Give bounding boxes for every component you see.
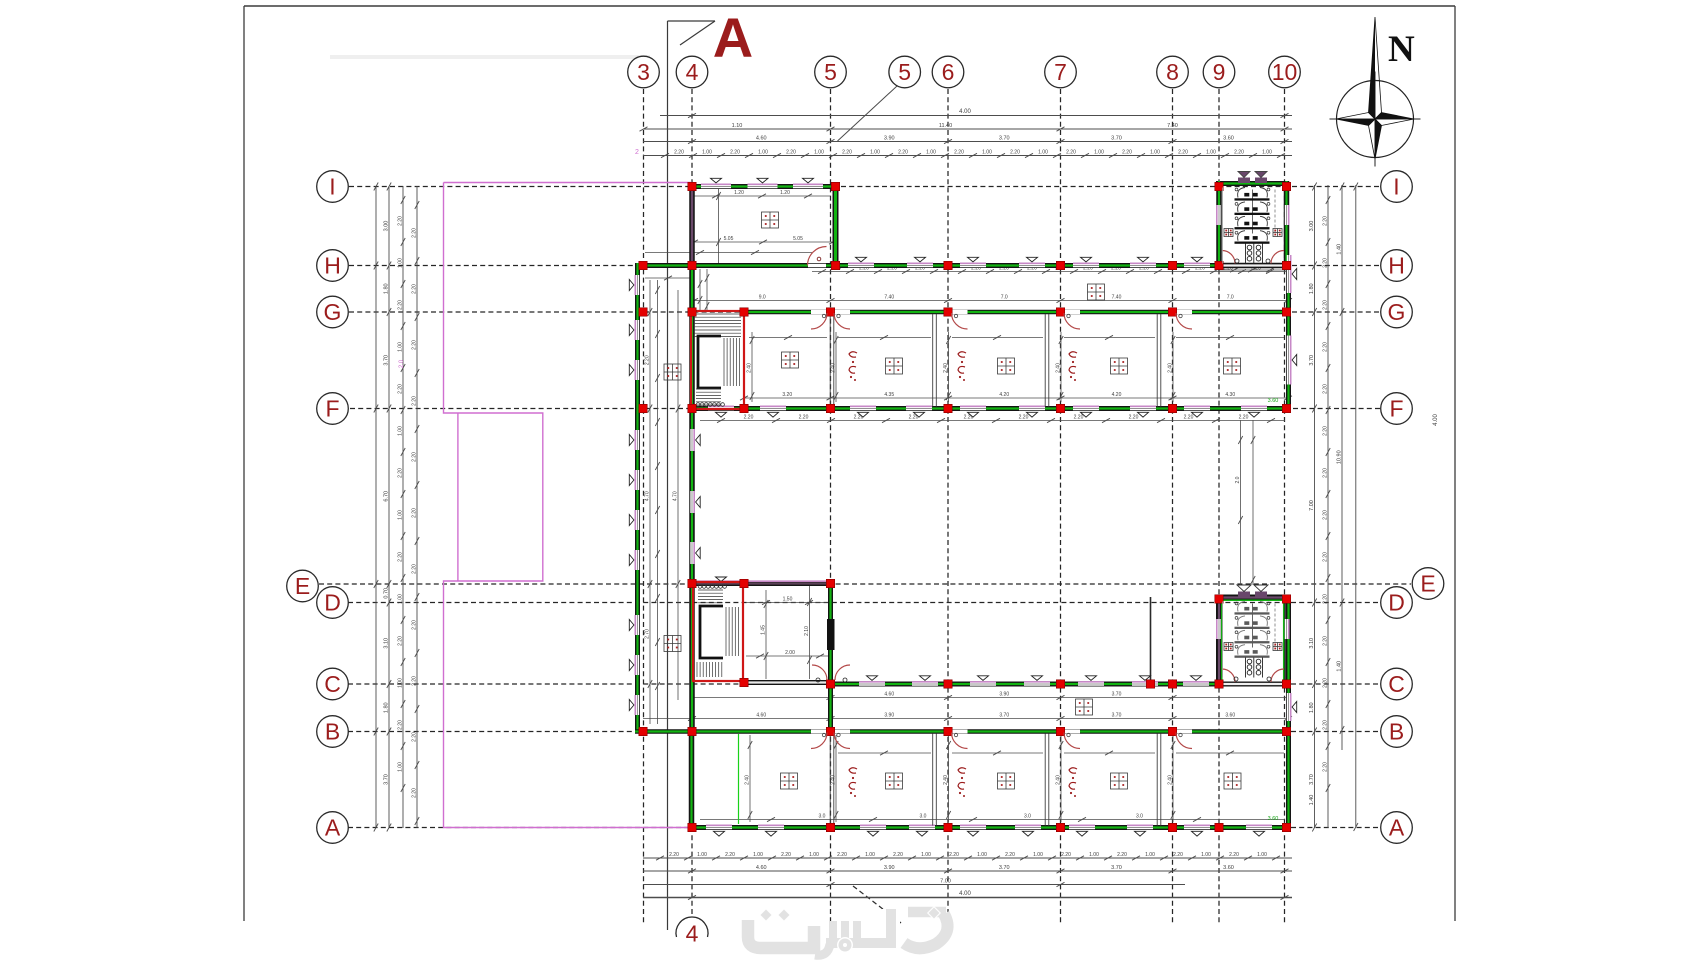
- svg-text:1.40: 1.40: [1337, 661, 1343, 672]
- svg-text:5: 5: [898, 59, 911, 85]
- svg-text:2.20: 2.20: [398, 552, 404, 562]
- svg-text:1.00: 1.00: [814, 150, 824, 156]
- svg-text:10: 10: [1272, 59, 1298, 85]
- svg-text:2.20: 2.20: [744, 415, 754, 421]
- svg-text:4.00: 4.00: [959, 109, 971, 115]
- svg-text:4.00: 4.00: [1433, 414, 1439, 426]
- svg-text:3.60: 3.60: [1225, 713, 1235, 719]
- svg-text:4.60: 4.60: [756, 865, 767, 871]
- svg-text:2.20: 2.20: [412, 732, 418, 742]
- svg-text:10.90: 10.90: [1337, 450, 1343, 464]
- svg-text:3.10: 3.10: [1309, 638, 1315, 649]
- svg-text:2.20: 2.20: [412, 228, 418, 238]
- svg-text:2.20: 2.20: [1323, 678, 1329, 688]
- svg-text:2.20: 2.20: [1323, 762, 1329, 772]
- svg-text:1.00: 1.00: [982, 150, 992, 156]
- svg-text:2.20: 2.20: [725, 852, 735, 858]
- svg-text:2.10: 2.10: [804, 626, 810, 636]
- svg-text:2.20: 2.20: [1323, 636, 1329, 646]
- svg-text:B: B: [1389, 719, 1404, 745]
- svg-text:2.20: 2.20: [412, 452, 418, 462]
- svg-text:3: 3: [637, 59, 650, 85]
- svg-text:4.20: 4.20: [999, 392, 1009, 398]
- svg-text:3.70: 3.70: [384, 774, 390, 785]
- svg-text:3.0: 3.0: [920, 814, 927, 820]
- svg-text:5: 5: [824, 59, 837, 85]
- svg-text:3.70: 3.70: [1112, 692, 1122, 698]
- svg-text:7.0: 7.0: [1227, 295, 1234, 301]
- svg-text:7: 7: [1054, 59, 1067, 85]
- svg-text:1.20: 1.20: [734, 190, 744, 196]
- svg-text:2.40: 2.40: [745, 775, 751, 785]
- svg-text:2.20: 2.20: [1229, 852, 1239, 858]
- svg-text:3.00: 3.00: [1309, 221, 1315, 232]
- svg-text:1.00: 1.00: [697, 852, 707, 858]
- svg-text:2.20: 2.20: [781, 852, 791, 858]
- svg-text:2.20: 2.20: [1184, 415, 1194, 421]
- svg-text:2.20: 2.20: [1005, 852, 1015, 858]
- svg-text:2.20: 2.20: [398, 636, 404, 646]
- svg-text:2.20: 2.20: [1019, 415, 1029, 421]
- svg-text:2.20: 2.20: [1129, 415, 1139, 421]
- svg-text:1.00: 1.00: [977, 852, 987, 858]
- svg-text:2.20: 2.20: [1323, 510, 1329, 520]
- svg-text:1.00: 1.00: [758, 150, 768, 156]
- svg-text:3.70: 3.70: [999, 865, 1010, 871]
- svg-text:2.20: 2.20: [1323, 216, 1329, 226]
- svg-text:3.60: 3.60: [1223, 136, 1234, 142]
- svg-text:3.70: 3.70: [999, 136, 1010, 142]
- svg-text:6: 6: [942, 59, 955, 85]
- svg-text:2.20: 2.20: [786, 150, 796, 156]
- svg-text:2.20: 2.20: [842, 150, 852, 156]
- svg-text:F: F: [1389, 396, 1403, 422]
- svg-text:2.0: 2.0: [1235, 476, 1241, 483]
- svg-text:2.20: 2.20: [398, 300, 404, 310]
- svg-text:2.40: 2.40: [943, 363, 949, 373]
- svg-text:1.40: 1.40: [1337, 244, 1343, 255]
- svg-text:3.70: 3.70: [1111, 136, 1122, 142]
- svg-text:1.45: 1.45: [761, 625, 767, 635]
- svg-text:1.00: 1.00: [1145, 852, 1155, 858]
- svg-text:3.90: 3.90: [884, 865, 895, 871]
- svg-text:E: E: [1420, 571, 1435, 597]
- svg-text:3.90: 3.90: [999, 692, 1009, 698]
- svg-text:G: G: [1388, 299, 1406, 325]
- svg-text:3.0: 3.0: [819, 814, 826, 820]
- svg-text:2.20: 2.20: [1061, 852, 1071, 858]
- svg-text:2.40: 2.40: [1168, 775, 1174, 785]
- svg-text:1.00: 1.00: [1089, 852, 1099, 858]
- svg-text:1.00: 1.00: [1257, 852, 1267, 858]
- svg-text:2.20: 2.20: [398, 216, 404, 226]
- svg-text:I: I: [329, 174, 335, 200]
- svg-text:7.00: 7.00: [940, 879, 951, 885]
- svg-text:2.20: 2.20: [898, 150, 908, 156]
- svg-text:2.20: 2.20: [1323, 342, 1329, 352]
- svg-text:2.20: 2.20: [412, 564, 418, 574]
- svg-text:N: N: [1388, 29, 1415, 70]
- svg-text:1.00: 1.00: [398, 258, 404, 268]
- svg-text:3.70: 3.70: [1309, 774, 1315, 785]
- svg-text:2.00: 2.00: [785, 650, 795, 656]
- svg-text:C: C: [1388, 671, 1405, 697]
- svg-text:3.70: 3.70: [999, 713, 1009, 719]
- svg-text:1.00: 1.00: [1201, 852, 1211, 858]
- svg-text:C: C: [324, 671, 341, 697]
- svg-text:2.20: 2.20: [1010, 150, 1020, 156]
- svg-text:2.40: 2.40: [1056, 775, 1062, 785]
- svg-text:A: A: [325, 815, 341, 841]
- svg-text:7.40: 7.40: [1112, 295, 1122, 301]
- svg-text:1.00: 1.00: [753, 852, 763, 858]
- svg-text:1.00: 1.00: [398, 426, 404, 436]
- svg-text:1.00: 1.00: [398, 762, 404, 772]
- svg-text:3.70: 3.70: [1309, 355, 1315, 366]
- svg-text:2.20: 2.20: [1323, 594, 1329, 604]
- svg-text:2.20: 2.20: [398, 720, 404, 730]
- svg-text:1.00: 1.00: [1094, 150, 1104, 156]
- svg-text:11.40: 11.40: [939, 123, 952, 129]
- svg-text:4.35: 4.35: [884, 392, 894, 398]
- svg-text:4: 4: [686, 921, 699, 947]
- svg-text:2.20: 2.20: [730, 150, 740, 156]
- svg-text:5.05: 5.05: [724, 236, 734, 242]
- svg-text:2.20: 2.20: [1173, 852, 1183, 858]
- svg-text:1.00: 1.00: [1038, 150, 1048, 156]
- svg-text:2.20: 2.20: [1323, 552, 1329, 562]
- svg-text:9: 9: [1213, 59, 1226, 85]
- svg-text:1.80: 1.80: [384, 702, 390, 713]
- svg-text:1.00: 1.00: [398, 678, 404, 688]
- svg-text:8: 8: [1166, 59, 1179, 85]
- svg-text:2.20: 2.20: [1323, 258, 1329, 268]
- svg-text:3.00: 3.00: [384, 221, 390, 232]
- svg-text:3.70: 3.70: [1111, 865, 1122, 871]
- svg-text:2.20: 2.20: [954, 150, 964, 156]
- svg-text:1.00: 1.00: [865, 852, 875, 858]
- svg-text:3.0: 3.0: [1136, 814, 1143, 820]
- svg-text:2.20: 2.20: [412, 396, 418, 406]
- svg-text:A: A: [1389, 815, 1405, 841]
- svg-text:2.40: 2.40: [943, 775, 949, 785]
- svg-text:2.20: 2.20: [412, 620, 418, 630]
- svg-text:1.80: 1.80: [384, 283, 390, 294]
- svg-text:2.20: 2.20: [412, 340, 418, 350]
- svg-text:B: B: [325, 719, 340, 745]
- svg-text:7.40: 7.40: [1167, 123, 1178, 129]
- svg-text:2.20: 2.20: [398, 384, 404, 394]
- svg-text:2.20: 2.20: [645, 355, 651, 365]
- svg-text:1.10: 1.10: [732, 123, 743, 129]
- svg-text:2.20: 2.20: [674, 150, 684, 156]
- svg-text:4.60: 4.60: [756, 713, 766, 719]
- svg-text:2: 2: [635, 149, 639, 156]
- svg-text:4.60: 4.60: [756, 136, 767, 142]
- svg-text:F: F: [325, 396, 339, 422]
- svg-text:2.20: 2.20: [1117, 852, 1127, 858]
- svg-text:2.40: 2.40: [1168, 363, 1174, 373]
- svg-text:I: I: [1393, 174, 1399, 200]
- svg-text:A: A: [713, 6, 753, 69]
- svg-text:2.40: 2.40: [1056, 363, 1062, 373]
- svg-text:H: H: [1388, 253, 1405, 279]
- svg-text:2.20: 2.20: [1239, 415, 1249, 421]
- svg-text:1.00: 1.00: [702, 150, 712, 156]
- svg-text:7.0: 7.0: [1001, 295, 1008, 301]
- svg-text:1.40: 1.40: [1309, 795, 1315, 806]
- svg-text:7.00: 7.00: [1309, 500, 1315, 511]
- svg-text:2.20: 2.20: [1234, 150, 1244, 156]
- svg-text:2.20: 2.20: [1074, 415, 1084, 421]
- svg-text:4.30: 4.30: [1225, 392, 1235, 398]
- svg-text:2.20: 2.20: [1323, 384, 1329, 394]
- svg-text:1.80: 1.80: [1309, 702, 1315, 713]
- svg-text:1.00: 1.00: [1262, 150, 1272, 156]
- svg-text:2.20: 2.20: [1323, 426, 1329, 436]
- svg-text:1.00: 1.00: [1206, 150, 1216, 156]
- svg-text:1.00: 1.00: [398, 342, 404, 352]
- svg-text:2.20: 2.20: [949, 852, 959, 858]
- svg-text:3.70: 3.70: [384, 355, 390, 366]
- svg-text:3.20: 3.20: [782, 392, 792, 398]
- svg-text:1.00: 1.00: [926, 150, 936, 156]
- svg-text:3.60: 3.60: [1268, 398, 1279, 404]
- svg-text:2.20: 2.20: [669, 852, 679, 858]
- svg-text:2.40: 2.40: [747, 363, 753, 373]
- svg-text:2.70: 2.70: [645, 629, 651, 639]
- svg-text:2.20: 2.20: [398, 468, 404, 478]
- svg-text:2.20: 2.20: [1323, 720, 1329, 730]
- svg-text:1.00: 1.00: [398, 594, 404, 604]
- svg-text:2.20: 2.20: [837, 852, 847, 858]
- svg-text:7.40: 7.40: [884, 295, 894, 301]
- svg-text:4.70: 4.70: [645, 491, 651, 501]
- svg-text:1.00: 1.00: [398, 510, 404, 520]
- svg-text:1.20: 1.20: [780, 190, 790, 196]
- svg-text:H: H: [324, 253, 341, 279]
- svg-text:1.00: 1.00: [809, 852, 819, 858]
- svg-text:5.05: 5.05: [793, 236, 803, 242]
- svg-text:2.20: 2.20: [1323, 468, 1329, 478]
- svg-text:2.20: 2.20: [1178, 150, 1188, 156]
- svg-text:D: D: [324, 590, 341, 616]
- svg-text:E: E: [295, 573, 310, 599]
- svg-text:3.60: 3.60: [1223, 865, 1234, 871]
- svg-text:2.20: 2.20: [893, 852, 903, 858]
- svg-text:4.70: 4.70: [673, 491, 679, 501]
- svg-text:4.60: 4.60: [884, 692, 894, 698]
- svg-text:2.20: 2.20: [1122, 150, 1132, 156]
- svg-text:0.70: 0.70: [384, 588, 390, 599]
- svg-text:1.00: 1.00: [870, 150, 880, 156]
- svg-text:3.70: 3.70: [1112, 713, 1122, 719]
- svg-text:2.20: 2.20: [1323, 300, 1329, 310]
- svg-text:G: G: [324, 299, 342, 325]
- svg-text:3.60: 3.60: [1268, 816, 1279, 822]
- svg-text:1.80: 1.80: [1309, 283, 1315, 294]
- svg-text:2.20: 2.20: [412, 284, 418, 294]
- svg-text:D: D: [1388, 590, 1405, 616]
- svg-text:2.20: 2.20: [1066, 150, 1076, 156]
- svg-text:1.50: 1.50: [783, 597, 793, 603]
- svg-text:2.20: 2.20: [412, 508, 418, 518]
- svg-text:6.70: 6.70: [384, 491, 390, 502]
- svg-text:4.00: 4.00: [959, 891, 971, 897]
- svg-text:9.0: 9.0: [759, 295, 766, 301]
- svg-text:2.20: 2.20: [412, 788, 418, 798]
- svg-text:3.10: 3.10: [384, 638, 390, 649]
- svg-text:2.0: 2.0: [399, 359, 405, 368]
- svg-text:2.20: 2.20: [412, 676, 418, 686]
- svg-text:4: 4: [686, 59, 699, 85]
- svg-text:1.00: 1.00: [1150, 150, 1160, 156]
- svg-text:1.00: 1.00: [921, 852, 931, 858]
- svg-text:3.0: 3.0: [1024, 814, 1031, 820]
- svg-text:3.90: 3.90: [884, 136, 895, 142]
- svg-text:3.90: 3.90: [884, 713, 894, 719]
- svg-text:2.20: 2.20: [799, 415, 809, 421]
- svg-text:4.20: 4.20: [1112, 392, 1122, 398]
- svg-text:1.00: 1.00: [1033, 852, 1043, 858]
